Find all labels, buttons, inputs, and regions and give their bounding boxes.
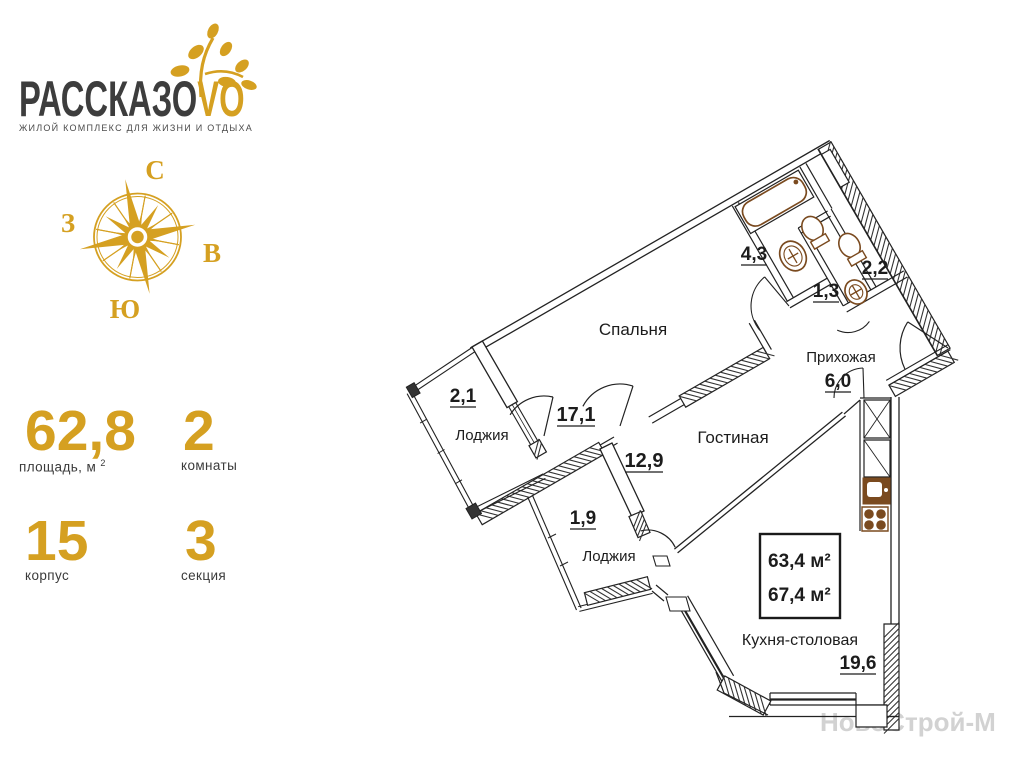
svg-text:Лоджия: Лоджия — [582, 548, 635, 565]
svg-text:Кухня-столовая: Кухня-столовая — [742, 632, 858, 649]
svg-text:17,1: 17,1 — [557, 404, 596, 426]
svg-text:67,4 м²: 67,4 м² — [768, 585, 831, 606]
svg-text:Спальня: Спальня — [599, 320, 667, 339]
svg-text:4,3: 4,3 — [741, 244, 767, 265]
svg-text:12,9: 12,9 — [625, 450, 664, 472]
svg-text:6,0: 6,0 — [825, 371, 851, 392]
svg-text:Прихожая: Прихожая — [806, 349, 876, 366]
svg-text:19,6: 19,6 — [840, 653, 877, 674]
svg-text:1,9: 1,9 — [570, 508, 596, 529]
svg-text:Лоджия: Лоджия — [455, 427, 508, 444]
svg-text:Гостиная: Гостиная — [697, 428, 768, 447]
svg-text:НовоСтрой-М: НовоСтрой-М — [820, 707, 996, 737]
svg-text:2,1: 2,1 — [450, 386, 477, 407]
svg-text:63,4 м²: 63,4 м² — [768, 551, 831, 572]
svg-text:1,3: 1,3 — [813, 281, 839, 302]
svg-text:2,2: 2,2 — [862, 258, 888, 279]
